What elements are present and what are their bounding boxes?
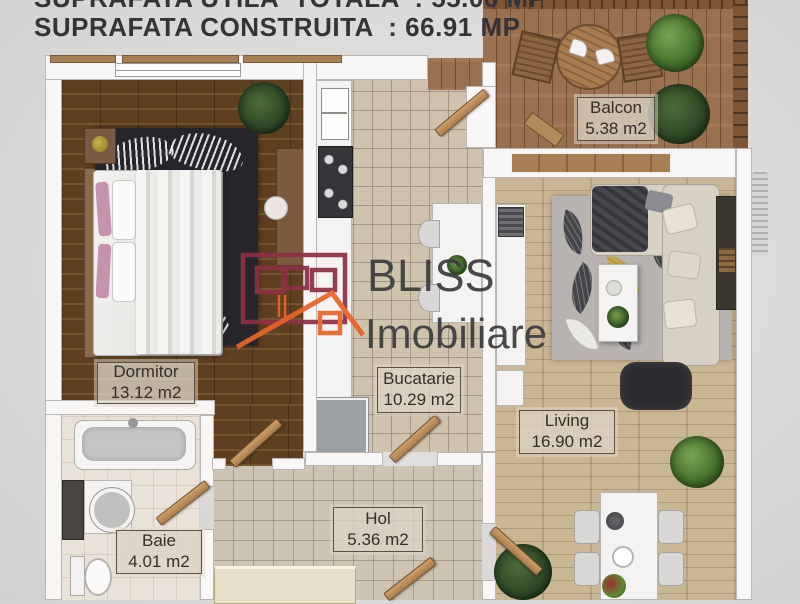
page: { "header": { "line1": "SUPRAFATA UTILA … [0, 0, 800, 600]
room-name: Baie [121, 531, 197, 552]
room-label-baie: Baie 4.01 m2 [116, 530, 202, 574]
room-name: Balcon [582, 98, 650, 119]
sofa-pillow [663, 298, 698, 329]
dining-chair [574, 552, 600, 586]
window-lintel [122, 55, 239, 63]
dining-chair [574, 510, 600, 544]
kitchen-sink-divider [321, 112, 347, 114]
sofa-pillow [666, 250, 701, 280]
room-label-living: Living 16.90 m2 [519, 410, 615, 454]
dining-table-flowers [602, 574, 626, 598]
sofa-throw [592, 186, 648, 252]
balcony-sliding-door [510, 152, 672, 174]
living-plant [670, 436, 724, 488]
watermark-logo: BLISS Imobiliare [222, 240, 582, 362]
room-area: 4.01 m2 [121, 552, 197, 573]
wall [272, 458, 305, 470]
bed-pillow-white [112, 180, 136, 240]
toilet-tank [70, 556, 85, 596]
watermark-subbrand: Imobiliare [365, 310, 547, 357]
room-name: Dormitor [102, 362, 190, 383]
room-area: 5.36 m2 [338, 530, 418, 551]
side-table-books [719, 248, 735, 272]
nightstand-plant [92, 136, 108, 152]
bathroom-sink [90, 488, 134, 532]
header-line-2: SUPRAFATA CONSTRUITA : 66.91 MP [34, 12, 520, 43]
bathtub-faucet [128, 418, 138, 428]
tv [498, 207, 524, 237]
bedroom-plant [238, 82, 290, 134]
stove [318, 146, 353, 218]
dining-table-bowl [606, 512, 624, 530]
wall [305, 452, 383, 466]
window-lintel [50, 55, 116, 63]
living-cabinet [496, 370, 524, 406]
hall-wardrobe [214, 566, 356, 604]
wall [437, 452, 482, 466]
room-label-bucatarie: Bucatarie 10.29 m2 [377, 367, 461, 413]
toilet-bowl [84, 558, 112, 596]
radiator [752, 172, 768, 256]
room-area: 13.12 m2 [102, 383, 190, 404]
balcony-plant [646, 14, 704, 72]
dining-chair [658, 510, 684, 544]
room-area: 10.29 m2 [382, 390, 456, 411]
wall [200, 529, 214, 600]
bed-duvet [136, 170, 221, 354]
balcony-plant [648, 84, 710, 144]
wall [482, 580, 496, 600]
wall [212, 458, 226, 470]
room-name: Hol [338, 509, 418, 530]
coffee-table-dish [606, 280, 622, 296]
desk-chair [264, 196, 288, 220]
room-label-dormitor: Dormitor 13.12 m2 [97, 362, 195, 404]
wall [482, 452, 496, 524]
room-name: Bucatarie [382, 369, 456, 390]
watermark-brand: BLISS [367, 250, 495, 301]
dining-table-plate [612, 546, 634, 568]
wall [45, 55, 62, 600]
room-area: 16.90 m2 [524, 432, 610, 453]
bathtub-basin [82, 427, 186, 461]
room-label-balcon: Balcon 5.38 m2 [577, 97, 655, 141]
kitchen-lower-unit [312, 398, 368, 454]
bathroom-cabinet [62, 480, 84, 540]
room-label-hol: Hol 5.36 m2 [333, 507, 423, 552]
armchair [620, 362, 692, 410]
room-area: 5.38 m2 [582, 119, 650, 140]
room-name: Living [524, 411, 610, 432]
kitchen-sink [321, 88, 349, 140]
wall [200, 415, 214, 487]
dining-chair [658, 552, 684, 586]
coffee-table [598, 264, 638, 342]
bedroom-window [115, 63, 241, 77]
wall [736, 148, 752, 600]
floor-plan: Dormitor 13.12 m2 Bucatarie 10.29 m2 Bal… [0, 0, 800, 600]
balcony-railing-right [733, 4, 748, 148]
window-lintel [243, 55, 342, 63]
coffee-table-plant [607, 306, 629, 328]
bed-pillow-white [112, 242, 136, 302]
